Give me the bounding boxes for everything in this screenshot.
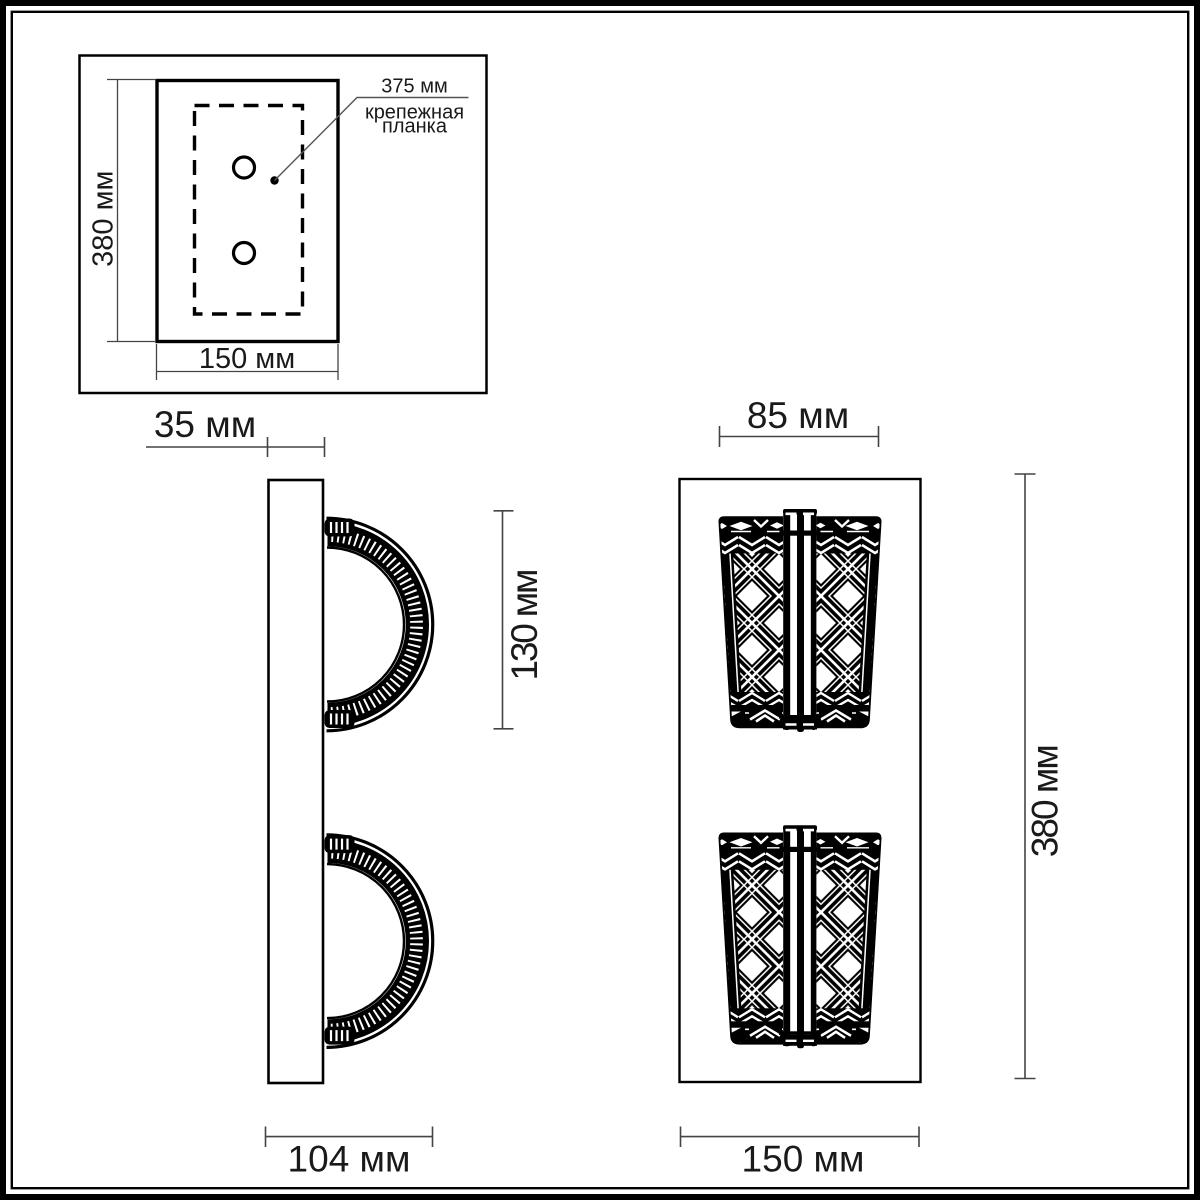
svg-text:130 мм: 130 мм [504, 569, 545, 681]
svg-text:35 мм: 35 мм [154, 404, 256, 445]
svg-text:150 мм: 150 мм [742, 1139, 865, 1180]
svg-text:380 мм: 380 мм [1025, 744, 1066, 857]
svg-text:375 мм: 375 мм [381, 76, 447, 98]
svg-text:104 мм: 104 мм [288, 1139, 411, 1180]
svg-text:планка: планка [382, 116, 448, 138]
svg-text:85 мм: 85 мм [747, 395, 849, 436]
svg-text:150 мм: 150 мм [199, 343, 295, 375]
svg-text:380 мм: 380 мм [88, 171, 120, 267]
